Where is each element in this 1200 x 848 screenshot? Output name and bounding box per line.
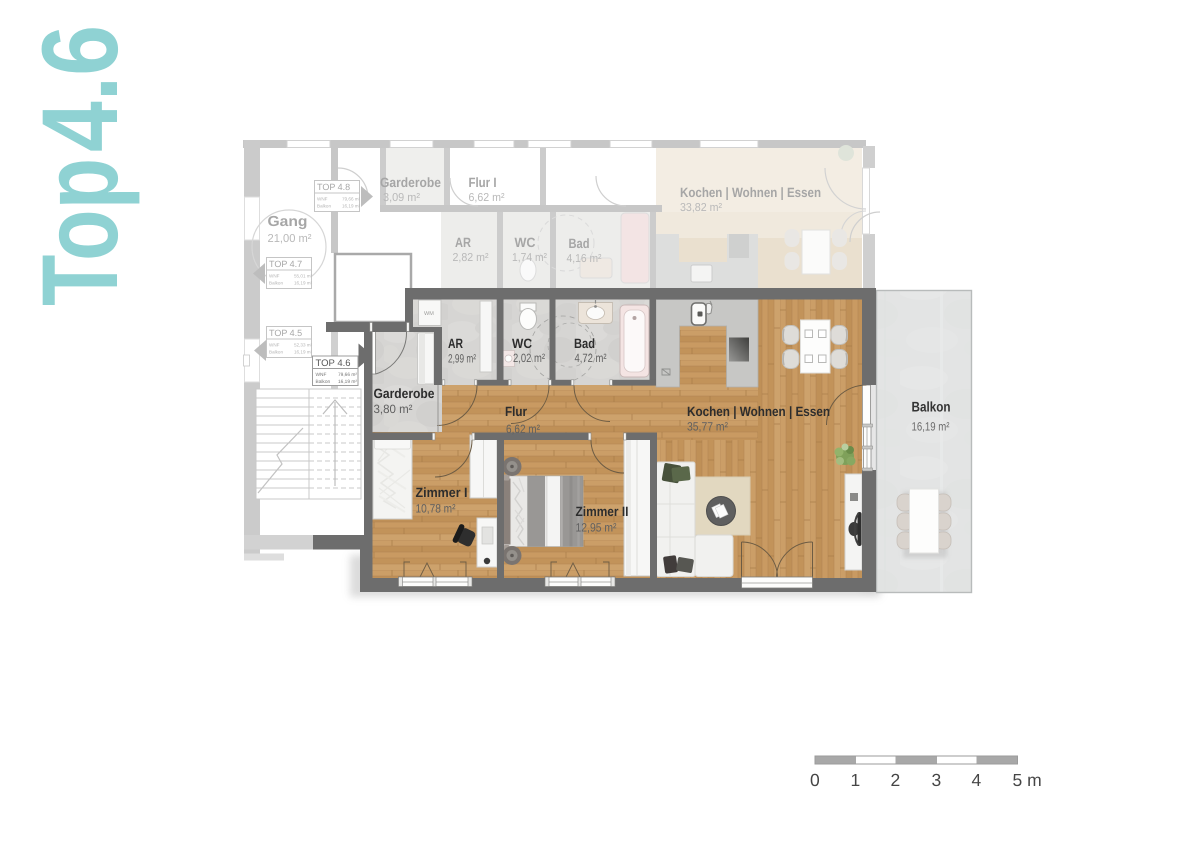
- svg-text:Balkon: Balkon: [269, 281, 283, 286]
- svg-text:Bad: Bad: [569, 236, 590, 251]
- svg-text:AR: AR: [455, 235, 471, 250]
- svg-text:79,66 m²: 79,66 m²: [342, 197, 361, 202]
- svg-text:TOP 4.8: TOP 4.8: [317, 182, 350, 192]
- svg-text:5 m: 5 m: [1013, 770, 1042, 790]
- svg-text:WC: WC: [515, 235, 536, 250]
- svg-text:4.6: 4.6: [19, 25, 140, 152]
- svg-text:Kochen | Wohnen | Essen: Kochen | Wohnen | Essen: [680, 185, 821, 200]
- svg-text:3,80 m²: 3,80 m²: [374, 402, 413, 416]
- svg-text:TOP 4.7: TOP 4.7: [269, 259, 302, 269]
- svg-text:33,82 m²: 33,82 m²: [680, 202, 722, 214]
- svg-text:WM: WM: [424, 311, 434, 317]
- svg-text:4: 4: [972, 770, 982, 790]
- svg-text:3: 3: [932, 770, 942, 790]
- svg-text:1,74 m²: 1,74 m²: [512, 252, 547, 264]
- svg-text:6,62 m²: 6,62 m²: [469, 192, 505, 204]
- svg-text:Flur I: Flur I: [469, 175, 497, 190]
- svg-text:Bad: Bad: [574, 336, 595, 351]
- svg-text:Balkon: Balkon: [912, 399, 951, 415]
- svg-text:4,16 m²: 4,16 m²: [567, 253, 602, 265]
- svg-text:WNF: WNF: [317, 197, 328, 202]
- svg-text:Kochen | Wohnen | Essen: Kochen | Wohnen | Essen: [687, 404, 830, 419]
- svg-text:Zimmer I: Zimmer I: [416, 485, 468, 500]
- svg-text:52,33 m²: 52,33 m²: [294, 343, 313, 348]
- svg-text:16,19 m²: 16,19 m²: [294, 281, 313, 286]
- svg-text:16,19 m²: 16,19 m²: [912, 420, 950, 434]
- svg-text:0: 0: [810, 770, 820, 790]
- svg-text:2: 2: [891, 770, 901, 790]
- svg-text:21,00 m²: 21,00 m²: [268, 233, 312, 245]
- svg-text:2,99 m²: 2,99 m²: [448, 352, 476, 366]
- svg-text:Garderobe: Garderobe: [374, 386, 435, 401]
- svg-text:12,95 m²: 12,95 m²: [576, 521, 617, 535]
- svg-text:16,19 m²: 16,19 m²: [338, 379, 357, 385]
- svg-text:16,19 m²: 16,19 m²: [342, 204, 361, 209]
- svg-text:AR: AR: [448, 336, 463, 351]
- svg-text:55,01 m²: 55,01 m²: [294, 274, 313, 279]
- svg-text:TOP 4.6: TOP 4.6: [316, 358, 351, 369]
- svg-text:79,66 m²: 79,66 m²: [338, 372, 357, 378]
- svg-text:16,19 m²: 16,19 m²: [294, 350, 313, 355]
- svg-text:Gang: Gang: [268, 214, 308, 230]
- svg-text:Top: Top: [19, 158, 140, 306]
- svg-text:35,77 m²: 35,77 m²: [687, 420, 728, 434]
- svg-text:WNF: WNF: [269, 343, 280, 348]
- svg-text:TOP 4.5: TOP 4.5: [269, 328, 302, 338]
- svg-text:3,09 m²: 3,09 m²: [383, 192, 420, 204]
- svg-text:6,62 m²: 6,62 m²: [506, 422, 540, 436]
- svg-text:2,82 m²: 2,82 m²: [453, 252, 489, 264]
- svg-text:WNF: WNF: [316, 372, 327, 378]
- svg-text:Balkon: Balkon: [269, 350, 283, 355]
- svg-text:1: 1: [851, 770, 861, 790]
- svg-text:Balkon: Balkon: [317, 204, 331, 209]
- svg-text:10,78 m²: 10,78 m²: [416, 502, 456, 516]
- svg-text:2,02 m²: 2,02 m²: [513, 351, 545, 365]
- svg-text:4,72 m²: 4,72 m²: [575, 351, 607, 365]
- svg-text:Balkon: Balkon: [316, 379, 331, 385]
- svg-text:Garderobe: Garderobe: [380, 175, 441, 190]
- svg-text:Flur: Flur: [505, 404, 528, 419]
- svg-text:WNF: WNF: [269, 274, 280, 279]
- svg-text:Zimmer II: Zimmer II: [576, 504, 629, 519]
- svg-text:WC: WC: [512, 336, 532, 351]
